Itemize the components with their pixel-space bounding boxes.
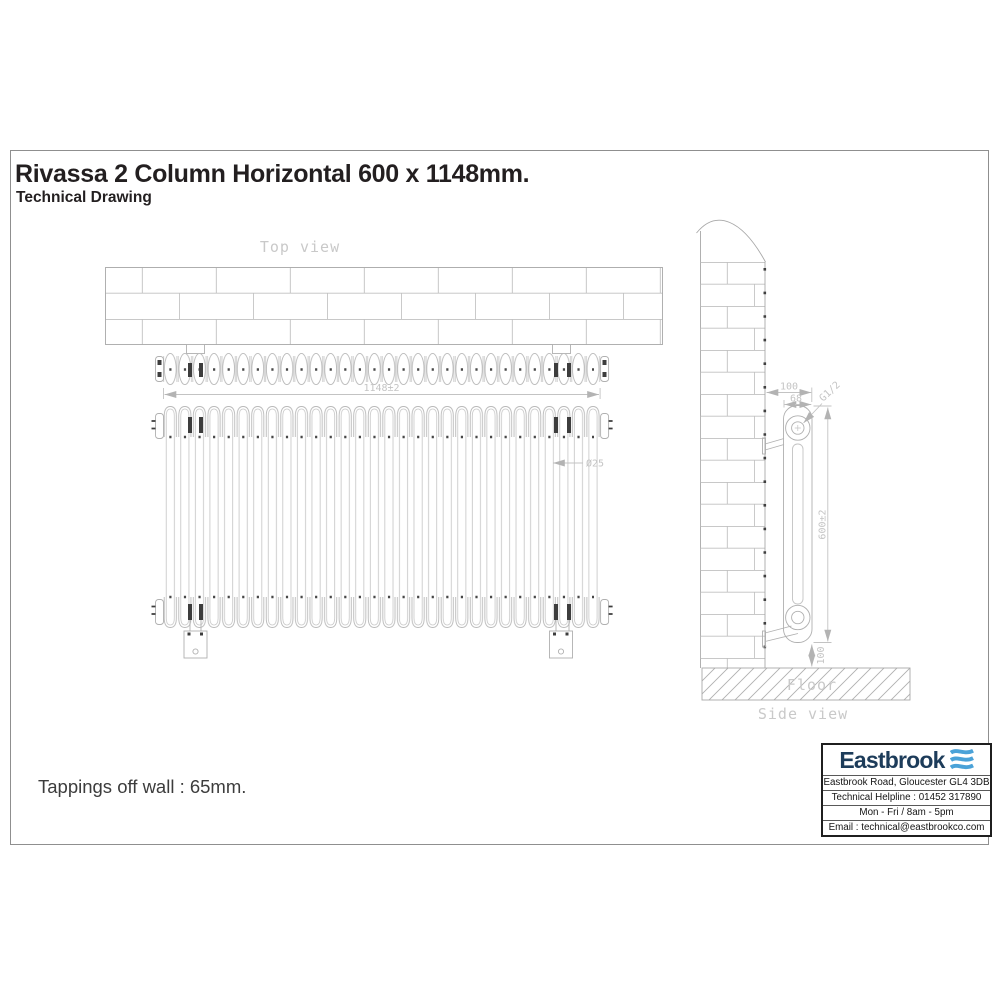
- top-view-label: Top view: [260, 238, 340, 256]
- tapping-dim-label: G1/2: [818, 380, 843, 404]
- radiator-side-profile: [784, 406, 813, 643]
- technical-drawing: Top view 1148±2: [0, 0, 1000, 1000]
- helpline-line: Technical Helpline : 01452 317890: [823, 791, 990, 806]
- wall-elevation: [701, 262, 766, 668]
- email-line: Email : technical@eastbrookco.com: [823, 821, 990, 835]
- radiator-front-top: [163, 404, 600, 437]
- top-view: Top view 1148±2: [106, 238, 663, 399]
- diameter-dim-label: Ø25: [586, 458, 604, 470]
- page: Rivassa 2 Column Horizontal 600 x 1148mm…: [0, 0, 1000, 1000]
- floor-gap-dim-label: 100: [816, 646, 827, 664]
- radiator-front-columns: [163, 437, 600, 597]
- wall-top-curve: [697, 220, 766, 262]
- hours-line: Mon - Fri / 8am - 5pm: [823, 806, 990, 821]
- tappings-note: Tappings off wall : 65mm.: [38, 776, 246, 798]
- front-view: Ø25: [152, 404, 613, 658]
- floor-label: Floor: [787, 676, 837, 694]
- off-wall-dim-label: 100: [780, 382, 798, 393]
- depth-dim-label: 68: [790, 394, 802, 405]
- eastbrook-logo-text: Eastbrook: [839, 749, 944, 772]
- radiator-front-bottom: [163, 597, 600, 630]
- eastbrook-info-box: Eastbrook Eastbrook Road, Gloucester GL4…: [821, 743, 992, 837]
- eastbrook-waves-icon: [950, 748, 974, 772]
- width-dim-label: 1148±2: [363, 383, 399, 394]
- side-view-label: Side view: [758, 705, 848, 723]
- side-view: Floor Side view: [697, 220, 911, 723]
- height-dim-label: 600±2: [818, 509, 829, 539]
- wall-plan: [106, 268, 663, 345]
- eastbrook-logo: Eastbrook: [823, 745, 990, 776]
- address-line: Eastbrook Road, Gloucester GL4 3DB: [823, 776, 990, 791]
- tapping-bottom: [786, 605, 810, 629]
